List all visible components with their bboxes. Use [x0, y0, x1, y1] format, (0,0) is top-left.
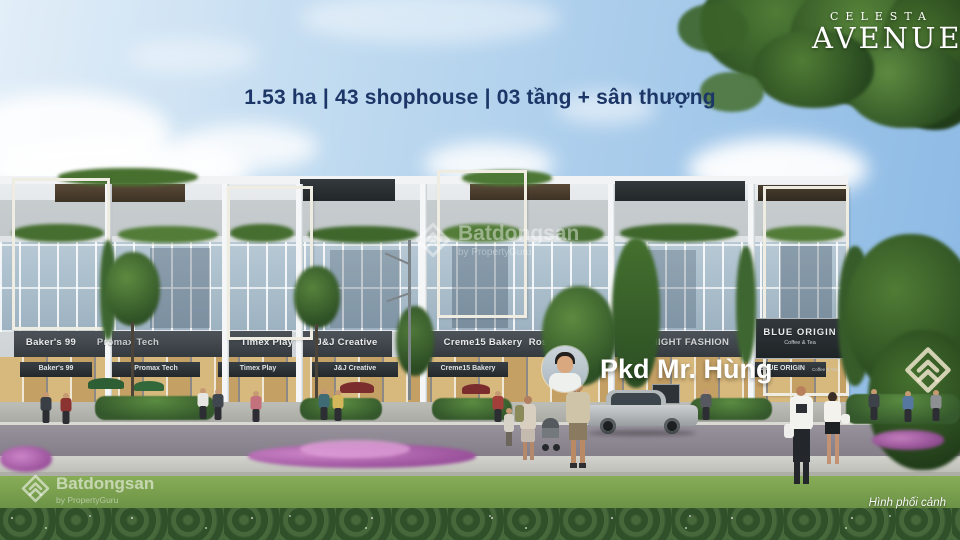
- shop-sign: Creme15 Bakery: [444, 337, 523, 348]
- person: [250, 391, 262, 422]
- shop-sign-small: Promax Tech: [134, 365, 177, 372]
- woman: [518, 396, 538, 462]
- patio-umbrella: [462, 384, 490, 394]
- watermark-brand: Batdongsan: [458, 222, 579, 246]
- car-shadow: [588, 430, 696, 436]
- vine-greenery: [736, 246, 756, 364]
- person: [332, 390, 344, 421]
- pedestrian-couple: [786, 384, 850, 488]
- cloud: [300, 0, 560, 44]
- agent-name: Pkd Mr. Hùng: [600, 354, 773, 385]
- batdongsan-logo-icon: [414, 222, 452, 258]
- batdongsan-logo-icon: [902, 346, 954, 394]
- cloud: [178, 124, 318, 170]
- person: [318, 389, 330, 420]
- bottom-hedge: [0, 508, 960, 540]
- avatar-shirt: [549, 373, 581, 392]
- pergola-roof: [300, 179, 395, 201]
- shop-sign: NIGHT FASHION: [651, 337, 729, 348]
- person: [212, 389, 224, 420]
- project-logo-line2: AVENUE: [812, 21, 944, 55]
- flower-bed: [0, 446, 52, 472]
- balcony-plants: [308, 226, 418, 243]
- flower-bed: [872, 430, 944, 450]
- stroller: [540, 418, 562, 452]
- shop-sign-small: Baker's 99: [39, 365, 74, 372]
- street-tree: [396, 306, 434, 376]
- watermark-center: Batdongsan by PropertyGuru: [414, 222, 579, 258]
- blue-origin-panel: [755, 318, 847, 359]
- shop-sign-small: Creme15 Bakery: [441, 365, 496, 372]
- shop-sign-small: Timex Play: [240, 365, 276, 372]
- person: [40, 392, 52, 423]
- shop-sign: Baker's 99: [26, 337, 76, 348]
- patio-umbrella: [134, 381, 164, 391]
- shop-sign-sub: Coffee & Tea: [784, 340, 816, 346]
- street-tree: [106, 252, 160, 326]
- child: [504, 408, 514, 448]
- person: [60, 393, 72, 424]
- balcony-plants: [118, 226, 218, 243]
- cloud: [128, 38, 258, 74]
- shop-sign-small-sub: Coffee & Tea: [812, 367, 838, 372]
- watermark-brand: Batdongsan: [56, 474, 154, 494]
- pedestrian-man: [562, 382, 594, 468]
- flower-bed: [300, 440, 410, 458]
- window-shadow-pane: [330, 250, 400, 328]
- car: [586, 390, 698, 436]
- watermark-bottom-left: Batdongsan by PropertyGuru: [20, 474, 154, 505]
- patio-umbrella: [340, 382, 374, 393]
- watermark-byline: by PropertyGuru: [56, 495, 154, 505]
- person: [902, 391, 914, 422]
- batdongsan-logo-icon: [20, 474, 51, 503]
- agent-avatar: [542, 346, 588, 392]
- person: [930, 390, 942, 421]
- shop-sign: Timex Play: [241, 337, 293, 348]
- project-logo: CELESTA AVENUE: [812, 10, 944, 55]
- watermark-byline: by PropertyGuru: [458, 247, 579, 258]
- headline: 1.53 ha | 43 shophouse | 03 tầng + sân t…: [0, 86, 960, 110]
- pergola-roof: [615, 181, 745, 201]
- patio-umbrella: [88, 378, 124, 389]
- listing-photo: Baker's 99 Promax Tech Timex Play J&J Cr…: [0, 0, 960, 540]
- feature-frame: [12, 178, 110, 330]
- person: [868, 389, 880, 420]
- person: [197, 388, 209, 419]
- avatar-face: [557, 356, 573, 373]
- shop-sign: BLUE ORIGIN: [763, 327, 836, 338]
- street-tree: [294, 266, 340, 328]
- tree-leaves: [678, 4, 748, 52]
- shop-sign-small: J&J Creative: [334, 365, 376, 372]
- render-caption: Hình phối cảnh: [869, 497, 946, 509]
- pedestrian-group-stroller: [502, 396, 564, 468]
- shop-sign: J&J Creative: [316, 337, 377, 348]
- person: [700, 389, 712, 420]
